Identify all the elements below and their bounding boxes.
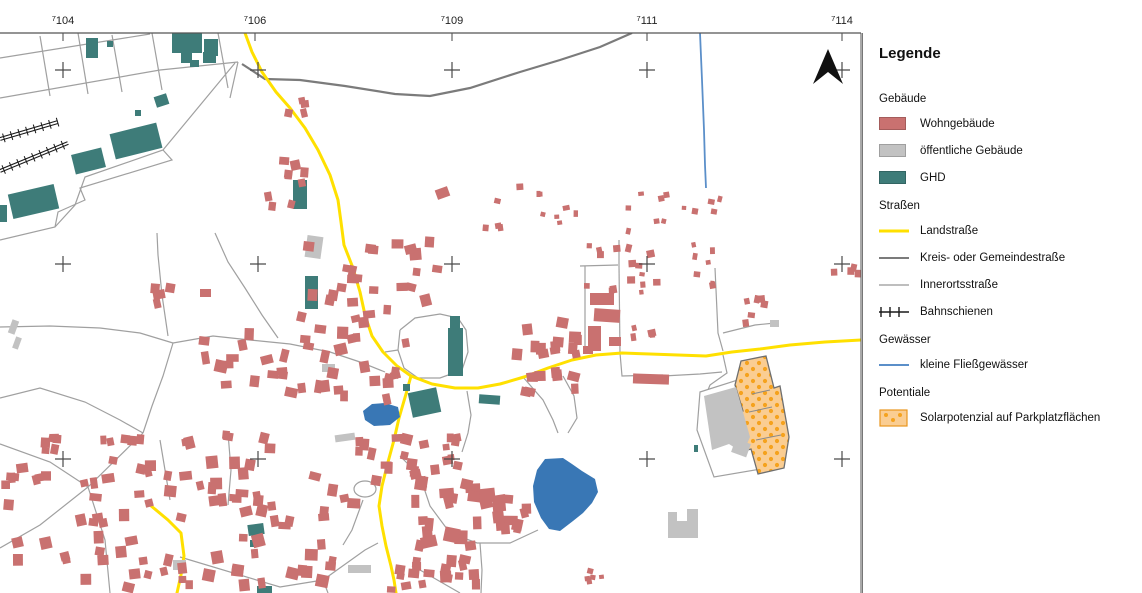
railway-tie <box>9 162 12 170</box>
grid-cross <box>250 256 266 272</box>
building-ghd <box>694 445 698 452</box>
building-residential <box>594 308 621 323</box>
railway-tie <box>2 165 5 173</box>
building-residential <box>153 298 162 309</box>
building-public <box>12 336 22 349</box>
grid-cross <box>55 62 71 78</box>
legend-item-label: kleine Fließgewässer <box>920 359 1028 371</box>
building-residential <box>165 283 176 294</box>
building-residential <box>653 218 659 224</box>
legend-item: Wohngebäude <box>879 110 1141 137</box>
building-residential <box>587 243 592 248</box>
pond <box>533 458 598 531</box>
building-residential <box>159 567 168 577</box>
building-residential <box>443 573 452 583</box>
railway-tie <box>17 159 20 167</box>
grid-cross <box>639 62 655 78</box>
legend-item-label: Solarpotenzial auf Parkplatzflächen <box>920 412 1100 424</box>
building-residential <box>325 561 336 570</box>
building-residential <box>198 336 209 346</box>
grid-cross <box>834 451 850 467</box>
building-residential <box>342 264 351 272</box>
building-residential <box>552 337 564 348</box>
legend-item: GHD <box>879 164 1141 191</box>
building-residential <box>568 342 578 354</box>
road-minor <box>0 62 238 98</box>
road-minor <box>523 377 558 433</box>
building-residential <box>639 290 644 295</box>
road-minor <box>385 350 398 352</box>
railway-track <box>0 123 58 140</box>
building-residential <box>284 387 298 399</box>
legend-title: Legende <box>879 45 1141 63</box>
railway-layer <box>0 118 69 174</box>
building-residential <box>412 562 421 571</box>
building-residential <box>163 553 174 566</box>
building-residential <box>574 210 578 217</box>
building-residential <box>347 298 358 307</box>
building-residential <box>663 191 670 198</box>
building-residential <box>469 569 480 580</box>
building-residential <box>609 337 621 346</box>
building-residential <box>590 293 614 305</box>
building-ghd <box>86 38 98 58</box>
building-residential <box>597 251 604 258</box>
building-public <box>770 320 779 327</box>
railway-tie <box>54 144 57 152</box>
building-residential <box>300 167 309 177</box>
building-residential <box>706 260 711 265</box>
building-residential <box>423 569 434 578</box>
building-residential <box>244 458 256 471</box>
railway-tie <box>56 118 59 127</box>
road-minor <box>663 372 722 376</box>
building-residential <box>202 568 216 582</box>
railway-tie <box>49 120 52 129</box>
building-residential <box>307 289 317 301</box>
building-residential <box>717 196 723 203</box>
building-residential <box>682 206 687 210</box>
building-residential <box>691 208 698 215</box>
road-minor <box>580 265 618 266</box>
building-residential <box>318 380 330 393</box>
legend-line-swatch <box>879 356 909 374</box>
building-residential <box>326 367 339 380</box>
building-residential <box>221 361 234 369</box>
building-ghd <box>408 387 442 417</box>
building-residential <box>494 494 507 504</box>
building-residential <box>538 192 543 197</box>
road-minor <box>40 36 50 96</box>
legend-item-label: Landstraße <box>920 225 978 237</box>
building-residential <box>75 513 87 526</box>
building-residential <box>13 554 23 566</box>
building-residential <box>327 483 338 496</box>
building-residential <box>658 195 665 202</box>
building-residential <box>479 488 496 504</box>
railway-track <box>1 144 69 172</box>
road-minor <box>215 233 278 338</box>
legend-item-label: Innerortsstraße <box>920 279 998 291</box>
building-residential <box>258 432 270 445</box>
grid-coordinate-label: 7111 <box>637 14 658 27</box>
building-residential <box>625 228 631 235</box>
legend-item: Bahnschienen <box>879 298 1141 325</box>
grid-coordinate-label: 7114 <box>831 14 853 27</box>
building-residential <box>136 434 144 444</box>
building-residential <box>297 383 306 394</box>
pond <box>363 403 400 426</box>
building-residential <box>319 506 329 519</box>
building-residential <box>298 178 307 187</box>
building-residential <box>290 159 302 171</box>
road-minor <box>620 353 663 376</box>
building-residential <box>831 269 838 276</box>
building-residential <box>439 488 454 498</box>
building-residential <box>16 463 29 474</box>
building-residential <box>392 239 404 248</box>
building-residential <box>308 471 321 482</box>
legend-line-swatch <box>879 222 909 240</box>
building-residential <box>237 339 247 351</box>
building-residential <box>249 375 260 387</box>
building-residential <box>584 283 590 289</box>
building-residential <box>200 289 211 297</box>
building-residential <box>411 495 419 508</box>
building-residential <box>562 205 570 211</box>
building-residential <box>583 346 593 354</box>
building-residential <box>163 470 172 481</box>
building-residential <box>260 354 274 365</box>
building-residential <box>424 518 434 532</box>
building-residential <box>89 493 102 502</box>
building-residential <box>257 577 266 588</box>
building-residential <box>41 447 49 454</box>
building-residential <box>447 454 454 461</box>
building-residential <box>80 574 91 585</box>
legend-line-swatch <box>879 249 909 267</box>
legend-item: Innerortsstraße <box>879 271 1141 298</box>
building-residential <box>363 310 376 319</box>
building-residential <box>264 191 273 201</box>
building-residential <box>455 572 464 580</box>
building-residential <box>11 536 24 548</box>
building-ghd <box>135 110 141 116</box>
building-residential <box>495 222 502 229</box>
legend-item-label: Kreis- oder Gemeindestraße <box>920 252 1065 264</box>
legend-group-label: Potentiale <box>879 387 1141 399</box>
road-minor <box>0 388 143 433</box>
building-residential <box>569 331 581 342</box>
building-ghd-layer <box>0 33 698 593</box>
building-residential <box>661 218 667 224</box>
building-residential <box>39 536 53 550</box>
railway-tie <box>3 134 6 143</box>
building-residential <box>100 435 106 444</box>
building-residential <box>1 481 10 490</box>
building-residential <box>710 247 715 254</box>
residential-clusters-layer <box>1 97 861 593</box>
legend-group-label: Straßen <box>879 200 1141 212</box>
building-residential <box>303 241 315 252</box>
legend-railway-swatch <box>879 303 909 321</box>
building-residential <box>638 191 644 196</box>
railway-tie <box>33 125 36 134</box>
building-residential <box>571 383 579 394</box>
building-residential <box>319 349 330 363</box>
building-residential <box>347 498 360 509</box>
building-residential <box>626 205 632 210</box>
building-residential <box>420 535 438 550</box>
building-residential <box>314 324 326 334</box>
building-residential <box>692 253 698 260</box>
building-residential <box>185 580 192 589</box>
road-minor <box>55 150 172 227</box>
building-residential <box>396 283 407 291</box>
building-residential <box>143 570 152 579</box>
building-residential <box>653 279 661 286</box>
building-residential <box>93 531 103 544</box>
grid-cross <box>55 256 71 272</box>
building-residential <box>201 351 210 365</box>
building-residential <box>221 380 232 388</box>
building-ghd <box>403 384 410 391</box>
building-residential <box>370 475 381 487</box>
building-residential <box>239 534 248 542</box>
railway-tie <box>10 131 13 140</box>
building-residential <box>540 212 546 218</box>
building-public <box>348 565 371 573</box>
building-residential <box>108 456 118 465</box>
railway-tie <box>46 147 49 155</box>
building-residential <box>590 574 596 580</box>
building-residential <box>336 283 347 293</box>
building-residential <box>365 244 376 254</box>
building-residential <box>442 444 449 451</box>
building-residential <box>90 477 99 489</box>
building-residential <box>744 298 750 305</box>
building-residential <box>278 371 288 380</box>
building-residential <box>650 333 656 338</box>
building-residential <box>708 199 715 205</box>
building-residential <box>401 338 410 348</box>
building-residential <box>473 516 482 529</box>
building-residential <box>554 214 559 219</box>
building-residential <box>460 478 474 491</box>
railway-track <box>0 142 67 170</box>
building-residential <box>627 276 635 283</box>
building-residential <box>552 369 563 381</box>
building-residential <box>296 311 307 322</box>
road-minor <box>715 268 723 351</box>
building-residential <box>387 586 396 593</box>
building-residential <box>587 568 594 575</box>
building-residential <box>640 281 646 288</box>
building-residential <box>284 108 293 117</box>
building-residential <box>125 535 139 546</box>
building-residential <box>177 562 187 574</box>
building-residential <box>625 244 633 253</box>
building-residential <box>847 267 854 275</box>
building-residential <box>453 461 463 471</box>
building-residential <box>359 360 371 373</box>
building-residential <box>711 208 718 214</box>
legend-panel: Legende GebäudeWohngebäudeöffentliche Ge… <box>862 33 1141 593</box>
building-residential <box>419 440 430 450</box>
grid-coordinate-label: 7104 <box>52 14 75 27</box>
building-residential <box>353 274 363 283</box>
building-residential <box>139 556 148 565</box>
road-major <box>242 33 632 96</box>
legend-color-swatch <box>879 117 906 130</box>
building-residential <box>50 444 59 455</box>
building-residential <box>264 443 275 453</box>
building-residential <box>301 566 313 579</box>
building-residential <box>528 374 538 382</box>
building-residential <box>435 186 451 200</box>
building-residential <box>97 555 109 566</box>
building-residential <box>693 271 700 277</box>
building-residential <box>464 540 476 551</box>
building-residential <box>418 580 426 589</box>
railway-tie <box>41 122 44 131</box>
building-residential <box>419 293 432 307</box>
building-residential <box>556 317 569 329</box>
building-residential <box>223 432 234 442</box>
building-residential <box>122 581 135 593</box>
building-residential <box>557 220 562 225</box>
road-minor <box>143 343 173 433</box>
building-residential <box>443 526 461 543</box>
building-residential <box>355 437 363 446</box>
building-residential <box>340 390 348 401</box>
grid-coordinate-label: 7106 <box>244 14 267 27</box>
building-residential <box>369 286 379 294</box>
building-ghd <box>154 93 170 107</box>
building-residential <box>482 224 488 231</box>
building-residential <box>229 494 237 502</box>
building-public <box>687 509 698 521</box>
building-residential <box>414 475 428 491</box>
building-residential <box>425 236 435 247</box>
road-minor <box>0 34 150 58</box>
building-residential <box>369 376 380 387</box>
building-residential <box>106 437 114 446</box>
building-residential <box>238 579 250 592</box>
legend-color-swatch <box>879 171 906 184</box>
building-ghd <box>450 316 460 328</box>
building-residential <box>115 546 127 558</box>
building-residential <box>742 319 749 327</box>
building-public <box>668 521 698 538</box>
legend-item-label: GHD <box>920 172 946 184</box>
building-residential <box>567 371 581 383</box>
building-residential <box>183 436 196 450</box>
legend-item-label: öffentliche Gebäude <box>920 145 1023 157</box>
building-residential <box>268 202 276 211</box>
building-ghd <box>479 394 501 404</box>
map-layout-page: 71047106710971117114 Legende GebäudeWohn… <box>0 0 1142 593</box>
building-residential <box>522 323 533 335</box>
building-residential <box>119 509 129 521</box>
railway-track <box>0 121 58 138</box>
building-ghd <box>448 328 463 376</box>
legend-group-label: Gewässer <box>879 334 1141 346</box>
building-residential <box>150 283 160 294</box>
building-residential <box>633 373 669 384</box>
building-residential <box>267 501 276 511</box>
building-residential <box>284 515 294 527</box>
grid-coordinate-label: 7109 <box>441 14 464 27</box>
railway-tie <box>61 141 64 149</box>
legend-item: Solarpotenzial auf Parkplatzflächen <box>879 404 1141 431</box>
building-residential <box>584 576 590 582</box>
road-minor <box>462 391 471 452</box>
building-residential <box>244 328 254 340</box>
road-minor <box>152 33 162 90</box>
building-residential <box>494 198 501 205</box>
building-residential <box>305 549 318 561</box>
stream-line <box>700 33 706 188</box>
grid-cross <box>639 256 655 272</box>
building-residential <box>609 285 617 294</box>
legend-item: Kreis- oder Gemeindestraße <box>879 244 1141 271</box>
building-residential <box>300 100 309 108</box>
building-residential <box>279 348 290 362</box>
grid-cross <box>639 451 655 467</box>
building-ghd <box>107 41 113 47</box>
legend-item-label: Wohngebäude <box>920 118 995 130</box>
building-residential <box>315 574 330 589</box>
road-minor <box>480 543 482 593</box>
building-ghd <box>0 205 7 222</box>
building-public <box>335 433 356 443</box>
legend-item: Landstraße <box>879 217 1141 244</box>
building-public <box>668 512 677 522</box>
building-residential <box>472 579 480 589</box>
building-residential <box>748 312 756 318</box>
building-residential <box>630 333 636 341</box>
building-residential <box>631 325 637 332</box>
building-residential <box>134 490 145 498</box>
building-residential <box>205 455 218 469</box>
building-residential <box>34 473 45 482</box>
building-residential <box>511 348 522 360</box>
building-residential <box>317 539 326 550</box>
building-residential <box>251 549 259 559</box>
building-residential <box>231 566 244 577</box>
building-residential <box>178 576 186 583</box>
building-residential <box>179 471 192 481</box>
map-canvas: 71047106710971117114 <box>0 0 862 593</box>
legend-line-swatch <box>879 276 909 294</box>
legend-item: kleine Fließgewässer <box>879 351 1141 378</box>
building-residential <box>432 265 443 274</box>
building-residential <box>516 183 523 190</box>
building-residential <box>412 268 420 277</box>
building-residential <box>164 485 177 497</box>
railway-tie <box>32 153 35 161</box>
building-residential <box>208 495 221 507</box>
building-residential <box>300 108 308 118</box>
building-ghd <box>172 33 202 53</box>
building-public-layer <box>8 235 779 573</box>
building-residential <box>333 342 348 356</box>
legend-group-label: Gebäude <box>879 93 1141 105</box>
building-residential <box>628 260 636 268</box>
building-residential <box>710 281 715 286</box>
building-residential <box>210 478 222 490</box>
